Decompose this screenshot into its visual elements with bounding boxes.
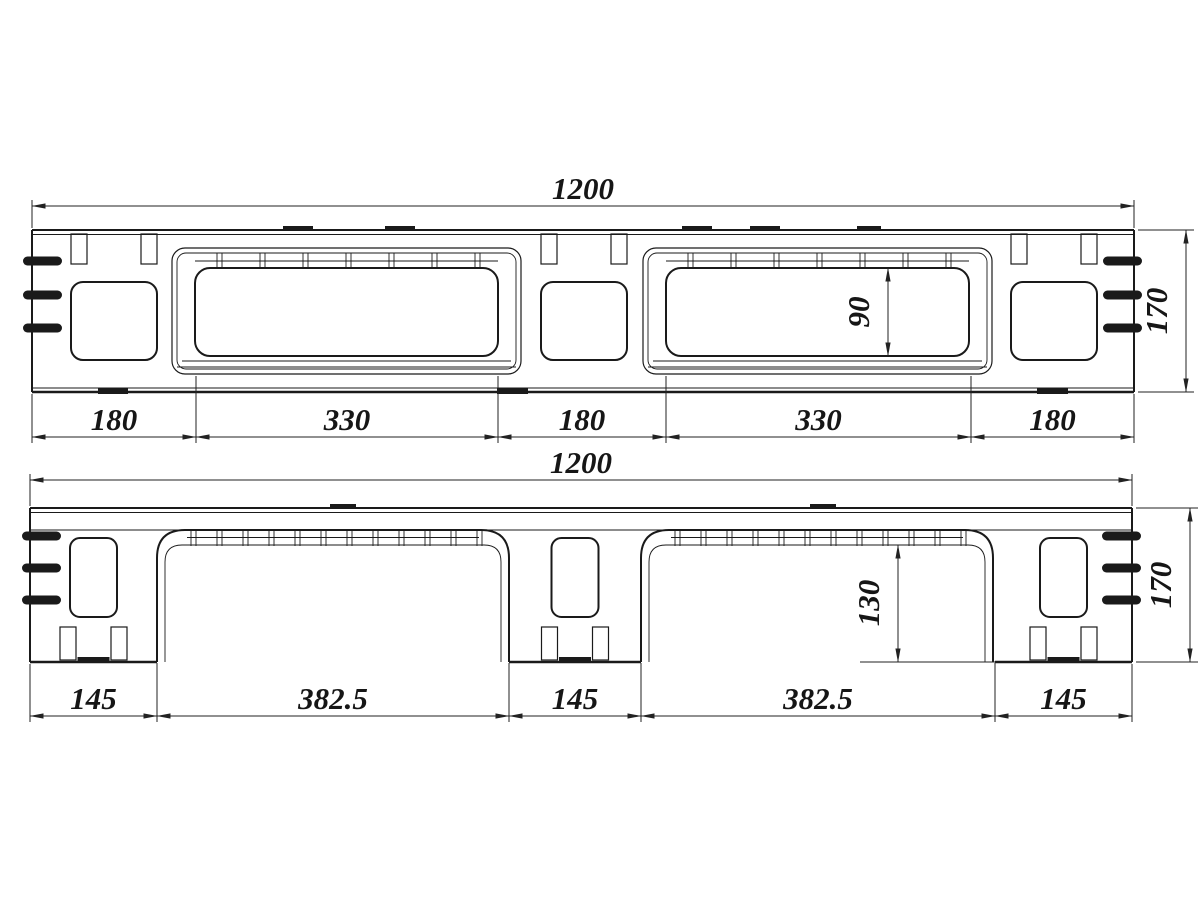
dim-label-height-bottom: 170 (1143, 562, 1178, 609)
dim-label-height-top: 170 (1139, 288, 1174, 335)
dim-label-overall-bottom: 1200 (550, 445, 612, 480)
tv-side-tabs-right (1103, 257, 1142, 333)
bottom-view: 1200 170 130 145 (22, 445, 1198, 722)
dim-label: 145 (70, 681, 117, 716)
bv-side-tabs-left (22, 532, 61, 605)
dim-label: 180 (559, 402, 606, 437)
dim-label: 382.5 (297, 681, 368, 716)
dim-label-overall-top: 1200 (552, 171, 614, 206)
bv-body-outline (30, 508, 1132, 662)
tv-dim-overall-width: 1200 (32, 171, 1134, 228)
bv-dim-height: 170 (1136, 508, 1198, 662)
dim-label-window-height: 90 (841, 297, 876, 328)
top-view: 1200 170 90 180 330 (23, 171, 1194, 443)
drawing-canvas: 1200 170 90 180 330 (0, 0, 1200, 900)
dim-label: 145 (552, 681, 599, 716)
dim-label-leg-height: 130 (851, 580, 886, 627)
bv-dim-leg-height: 130 (851, 545, 996, 662)
bv-dim-overall-width: 1200 (30, 445, 1132, 506)
tv-dim-window-height: 90 (841, 268, 888, 356)
dim-label: 180 (91, 402, 138, 437)
bv-side-tabs-right (1102, 532, 1141, 605)
tv-side-tabs-left (23, 257, 62, 333)
dim-label: 382.5 (782, 681, 853, 716)
bv-feet (60, 538, 1097, 663)
bv-dim-chain: 145 382.5 145 382.5 145 (30, 663, 1132, 722)
dim-label: 330 (794, 402, 842, 437)
pallet-technical-drawing: 1200 170 90 180 330 (0, 0, 1200, 900)
tv-dim-chain: 180 330 180 330 180 (32, 376, 1134, 443)
tv-dim-height: 170 (1138, 230, 1194, 392)
dim-label: 145 (1040, 681, 1087, 716)
dim-label: 330 (323, 402, 371, 437)
dim-label: 180 (1029, 402, 1076, 437)
